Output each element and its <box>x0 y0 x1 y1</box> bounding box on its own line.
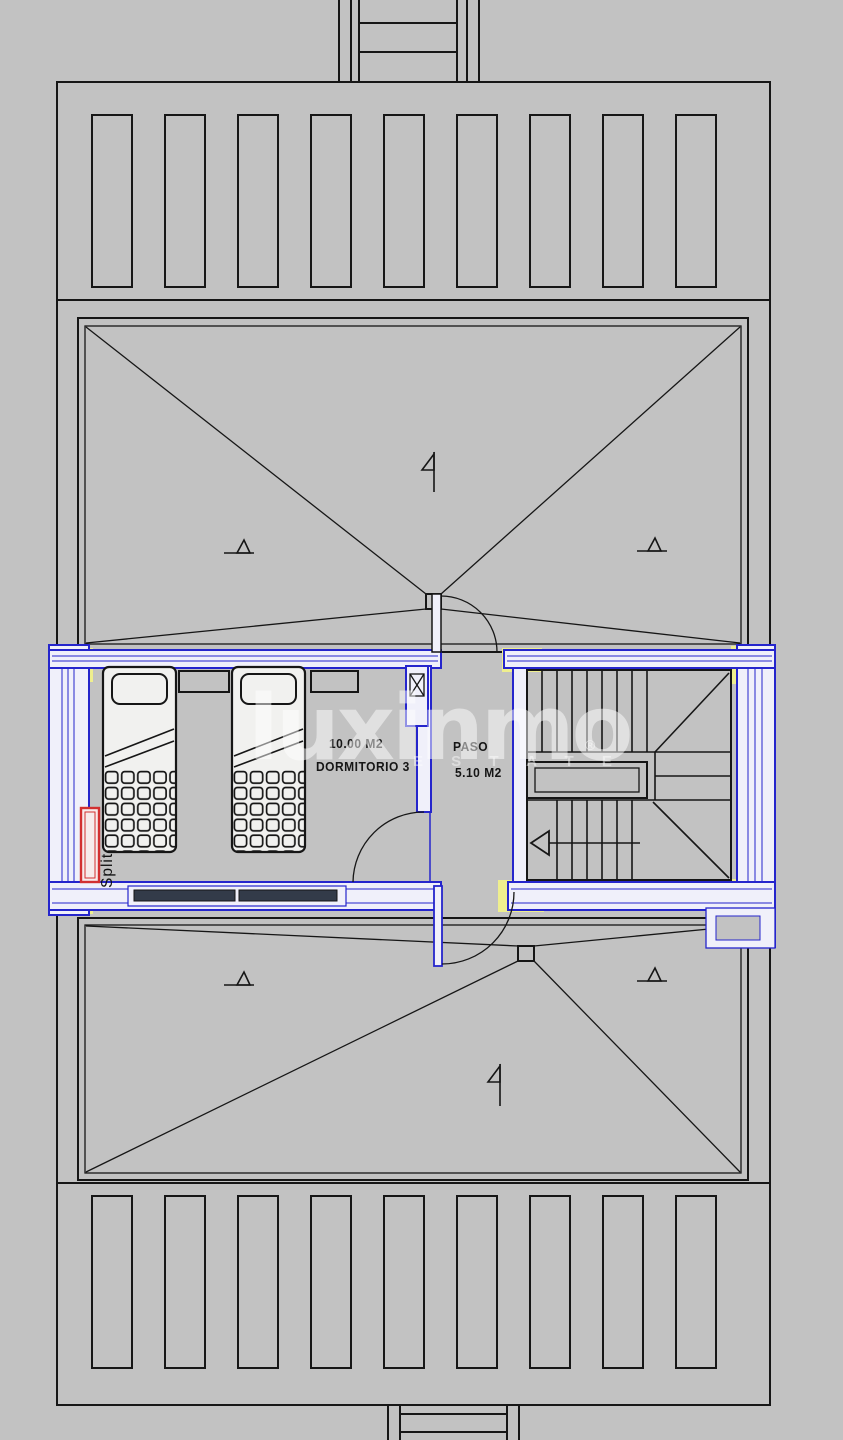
split-ac-label: Split <box>99 853 117 888</box>
nightstand <box>179 671 229 692</box>
floor-plan-canvas: 10.00 M2 DORMITORIO 3 PASO 5.10 M2 Split… <box>0 0 843 1440</box>
watermark-registered: ® <box>585 737 595 753</box>
top-chimney <box>339 0 479 82</box>
top-pergola <box>57 82 770 300</box>
wall-notch <box>706 908 775 948</box>
split-ac-unit <box>81 808 99 882</box>
roof-slope-arrow <box>224 540 254 553</box>
quilt-blanket <box>104 770 175 851</box>
watermark-tagline: E S T A T E <box>413 753 624 770</box>
lower-roof-terrace <box>78 918 748 1180</box>
roof-slope-arrow <box>637 968 667 981</box>
bottom-pergola <box>57 1183 770 1405</box>
bedroom-door <box>353 812 430 882</box>
roof-slope-arrow <box>422 452 434 492</box>
roof-slope-arrow <box>488 1064 500 1106</box>
upper-terrace-door <box>432 594 497 652</box>
roof-slope-arrow <box>637 538 667 551</box>
bedroom-window <box>128 886 346 906</box>
bottom-chimney <box>388 1405 519 1440</box>
bed <box>103 667 176 852</box>
stair-direction-arrow <box>531 831 640 855</box>
quilt-blanket <box>233 770 304 851</box>
roof-slope-arrow <box>224 972 254 985</box>
upper-roof-terrace <box>78 318 748 652</box>
